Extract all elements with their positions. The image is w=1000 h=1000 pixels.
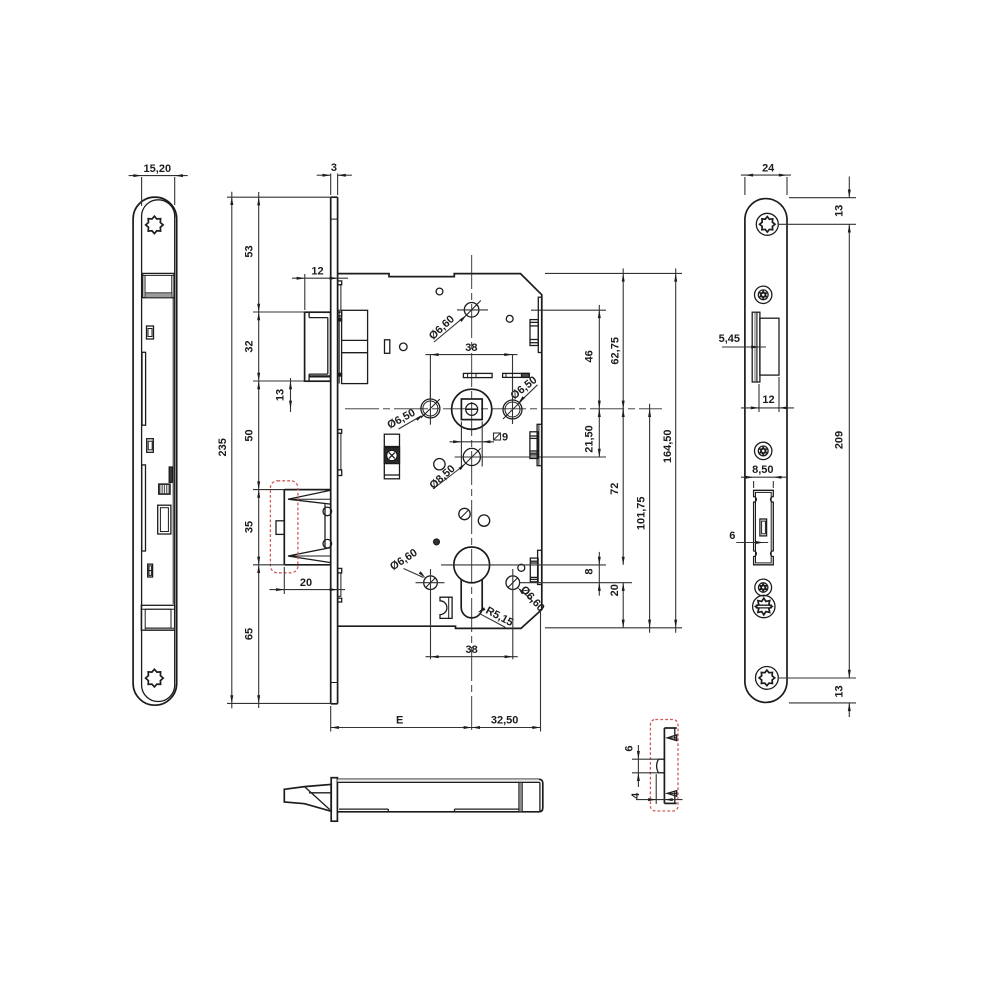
svg-text:35: 35 (244, 521, 256, 533)
svg-text:20: 20 (300, 577, 312, 589)
svg-text:5,45: 5,45 (719, 333, 740, 345)
svg-text:9: 9 (502, 432, 508, 444)
svg-text:E: E (396, 715, 403, 727)
svg-text:65: 65 (244, 628, 256, 640)
svg-text:6: 6 (624, 745, 636, 751)
svg-text:13: 13 (833, 205, 845, 217)
svg-text:15,20: 15,20 (144, 163, 172, 175)
svg-text:62,75: 62,75 (609, 337, 621, 365)
svg-text:209: 209 (833, 431, 845, 449)
svg-text:8: 8 (584, 568, 596, 574)
svg-text:46: 46 (584, 350, 596, 362)
svg-text:8,50: 8,50 (752, 464, 773, 476)
svg-text:12: 12 (311, 266, 323, 278)
svg-text:53: 53 (244, 245, 256, 257)
svg-text:13: 13 (275, 389, 287, 401)
svg-text:24: 24 (762, 163, 775, 175)
svg-text:13: 13 (833, 685, 845, 697)
svg-text:32: 32 (244, 340, 256, 352)
svg-text:50: 50 (244, 429, 256, 441)
svg-text:164,50: 164,50 (662, 429, 674, 463)
svg-text:38: 38 (465, 644, 477, 656)
svg-text:101,75: 101,75 (636, 496, 648, 530)
svg-text:12: 12 (762, 394, 774, 406)
svg-text:72: 72 (609, 483, 621, 495)
svg-text:20: 20 (609, 584, 621, 596)
svg-text:21,50: 21,50 (584, 425, 596, 453)
svg-text:6: 6 (729, 530, 735, 542)
svg-text:32,50: 32,50 (491, 715, 519, 727)
svg-text:3: 3 (331, 162, 337, 174)
svg-text:38: 38 (465, 342, 477, 354)
svg-text:4: 4 (630, 792, 642, 799)
svg-text:235: 235 (217, 438, 229, 456)
